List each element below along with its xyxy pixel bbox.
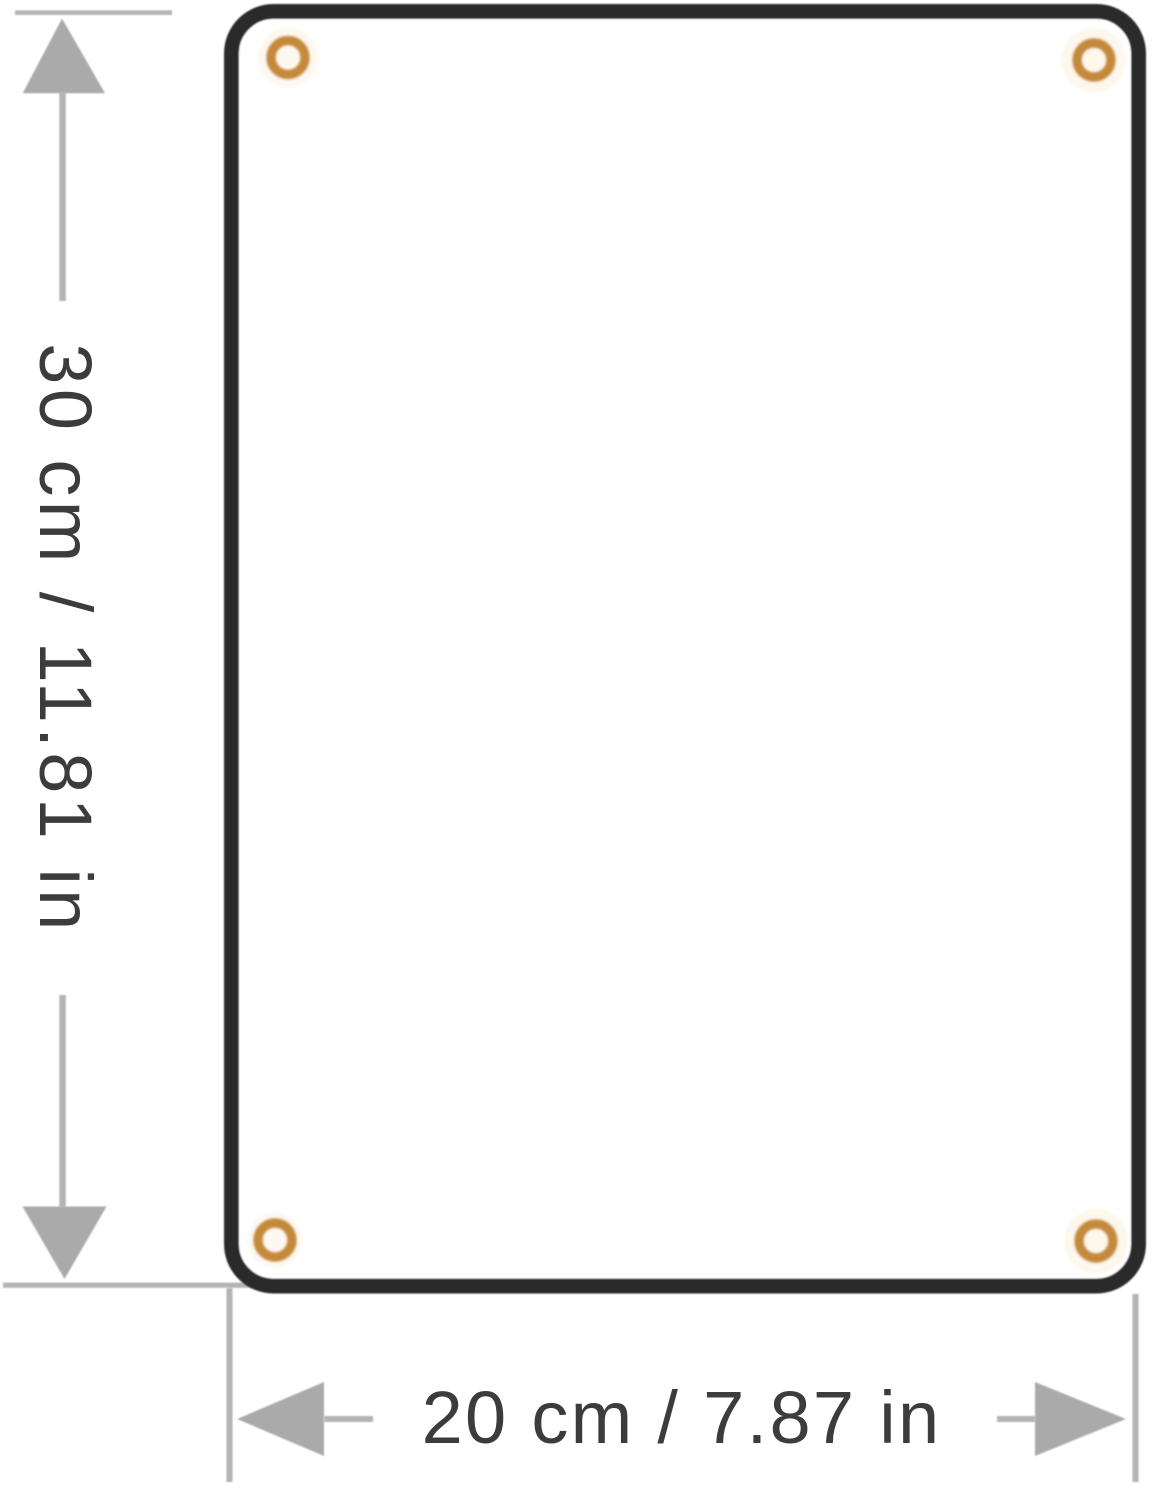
- svg-text:30 cm / 11.81 in: 30 cm / 11.81 in: [24, 343, 107, 934]
- svg-text:20 cm / 7.87 in: 20 cm / 7.87 in: [422, 1376, 942, 1459]
